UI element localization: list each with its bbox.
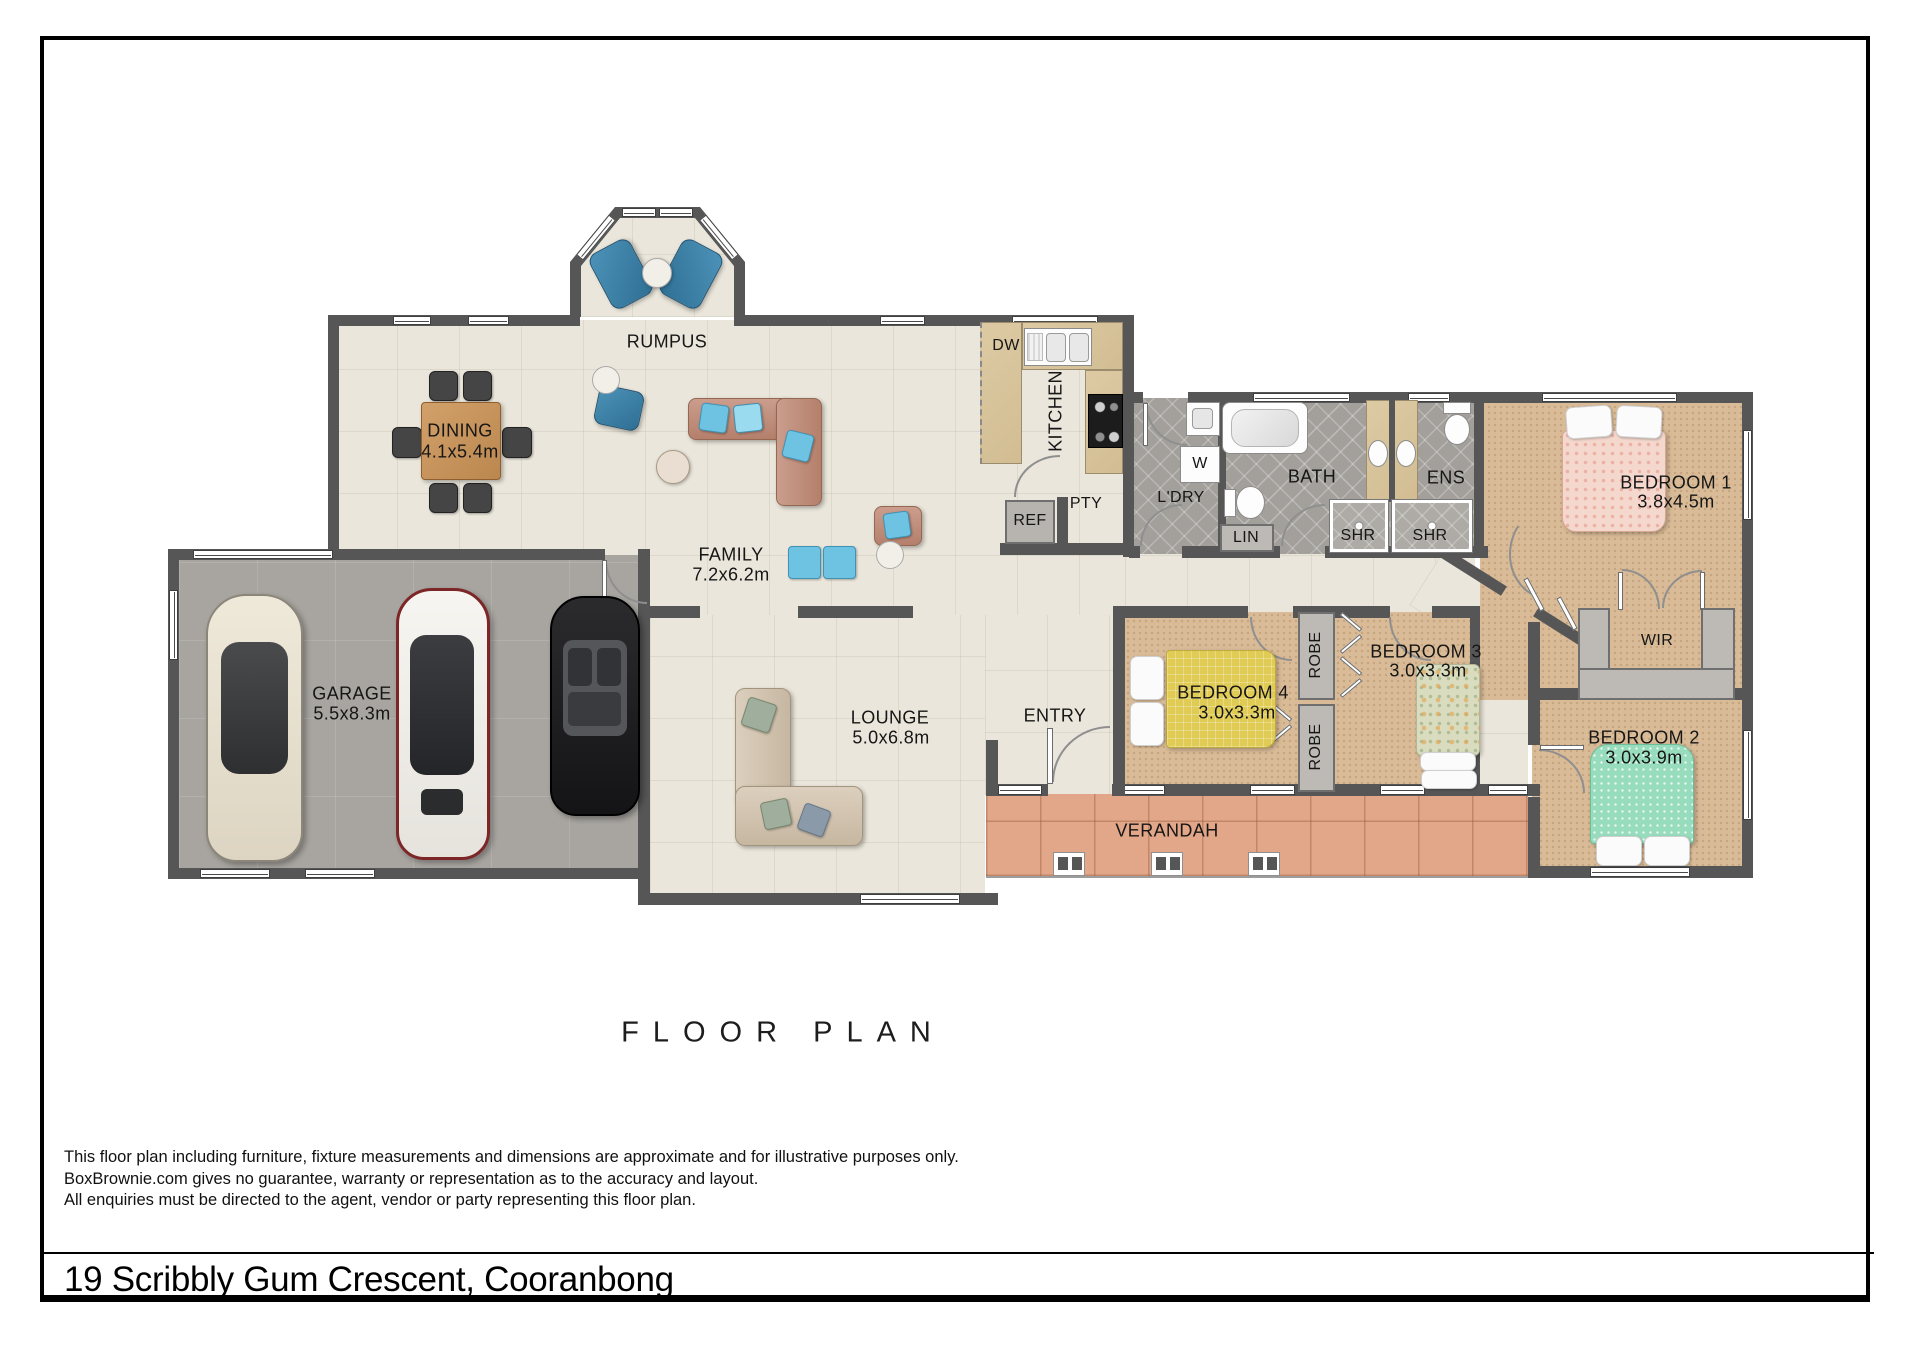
floor-plan-page: RUMPUS DINING 4.1x5.4m FAMILY 7.2x6.2m K…: [0, 0, 1920, 1357]
address-divider: [44, 1252, 1874, 1254]
address-text: 19 Scribbly Gum Crescent, Cooranbong: [64, 1260, 674, 1300]
page-border: [40, 36, 1870, 1302]
